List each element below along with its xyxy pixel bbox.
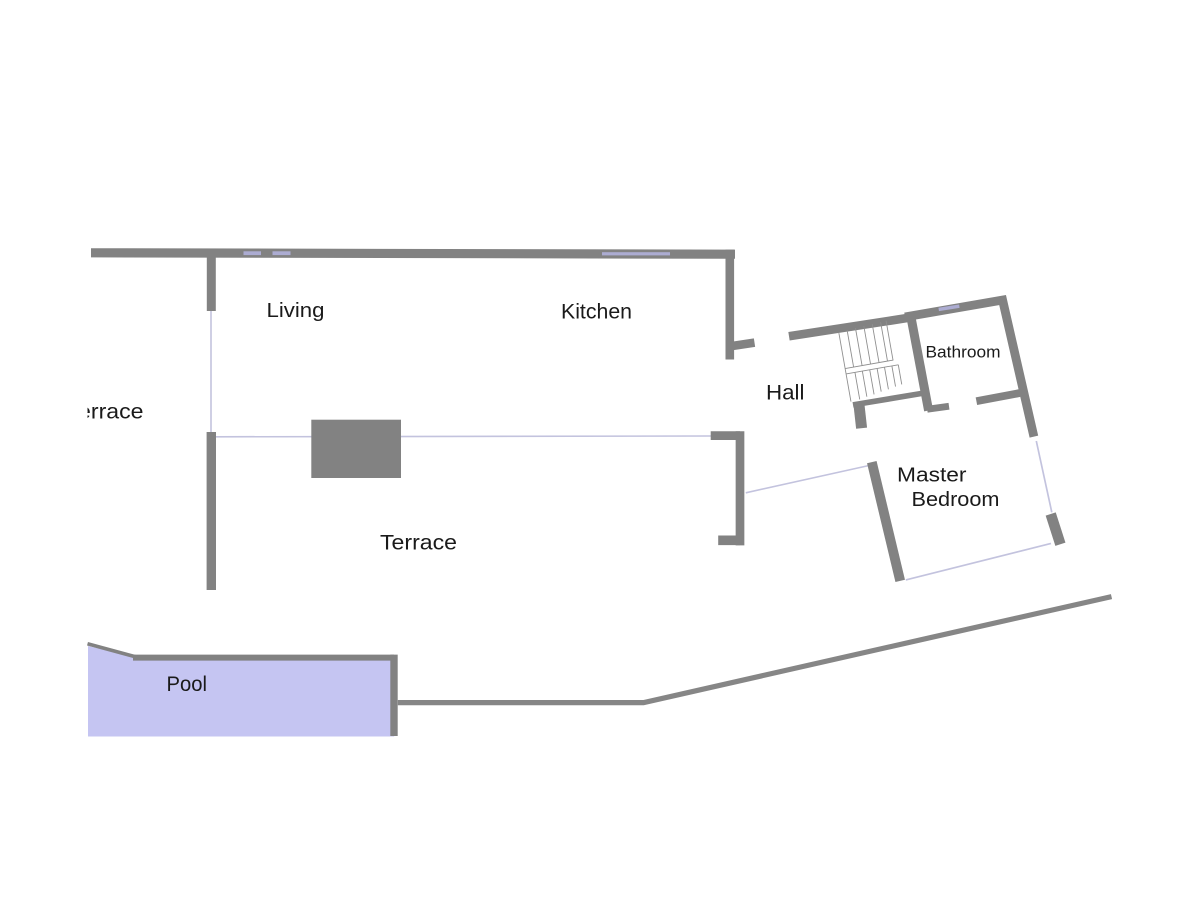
svg-text:Living: Living: [267, 300, 325, 322]
svg-text:Pool: Pool: [167, 673, 208, 696]
svg-text:Kitchen: Kitchen: [561, 301, 632, 324]
svg-text:Bedroom: Bedroom: [912, 488, 1000, 511]
svg-text:Terrace: Terrace: [67, 400, 144, 423]
svg-text:Bathroom: Bathroom: [926, 343, 1001, 362]
svg-text:Master: Master: [897, 464, 967, 487]
svg-text:Terrace: Terrace: [380, 532, 457, 555]
svg-text:Hall: Hall: [766, 381, 805, 404]
